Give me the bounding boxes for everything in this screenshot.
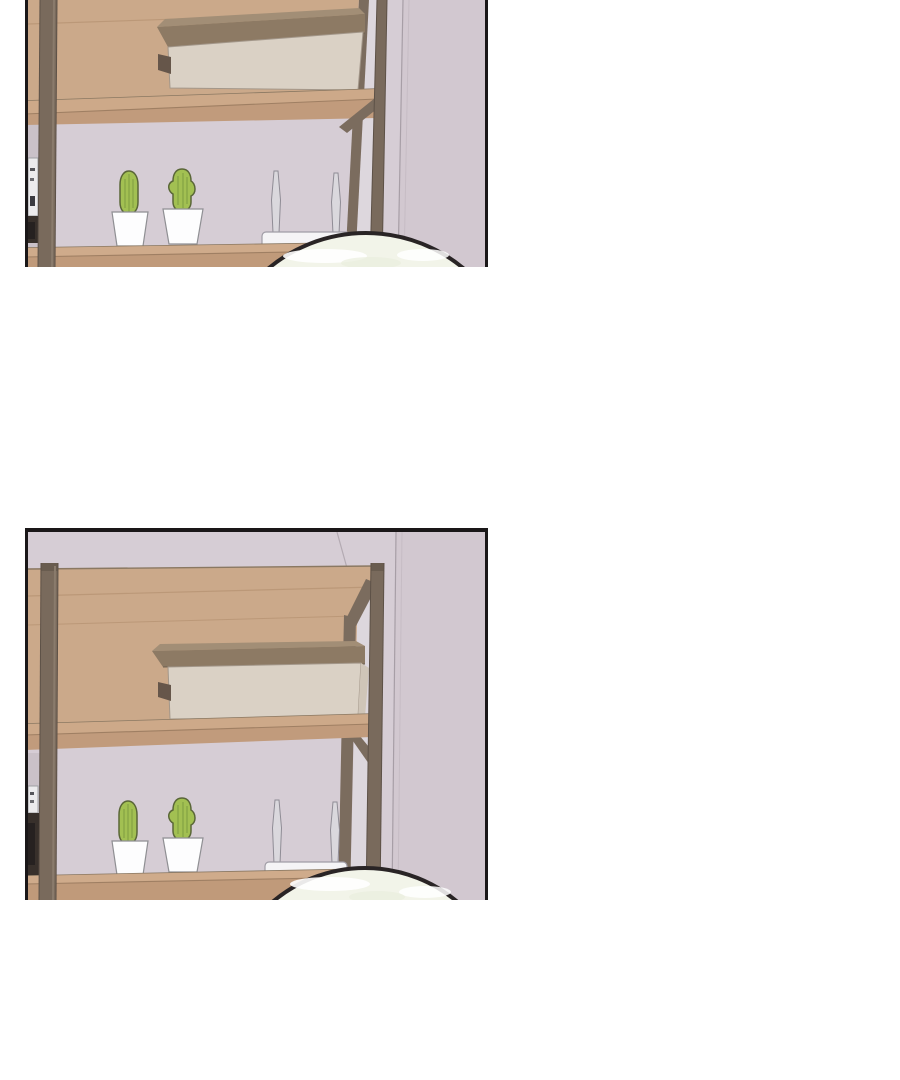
comic-panel-bottom (25, 528, 488, 900)
book-mark-3 (30, 196, 35, 206)
bubble-shine-1 (290, 877, 370, 891)
panel-border-right (485, 528, 488, 900)
comic-panel-top-canvas (25, 0, 488, 267)
wall-right-section (398, 0, 488, 267)
white-book-spine (28, 158, 38, 216)
panel-border-top (25, 528, 488, 532)
plant-pot-1 (112, 841, 148, 875)
comic-panel-top (25, 0, 488, 267)
book-mark-2 (30, 800, 34, 803)
dark-book-2 (28, 823, 35, 865)
plant-pot-1 (112, 212, 148, 246)
comic-panel-bottom-canvas (25, 528, 488, 900)
panel-border-right (485, 0, 488, 267)
book-mark-2 (30, 178, 34, 181)
router-antenna-left (273, 800, 282, 864)
router-antenna-right (332, 173, 341, 234)
white-book-spine (28, 786, 38, 813)
plant-pot-2 (163, 838, 203, 872)
book-mark-1 (30, 168, 35, 171)
panel-border-left (25, 0, 28, 267)
right-post-cap (371, 563, 384, 571)
book-mark-1 (30, 792, 34, 795)
router-antenna-left (272, 171, 281, 233)
bubble-shine-2 (397, 249, 449, 261)
webtoon-page (0, 0, 900, 1080)
storage-box-body (168, 663, 361, 719)
bubble-shine-2 (399, 886, 451, 898)
router-antenna-right (331, 802, 340, 863)
wall-right-section (392, 532, 488, 900)
dark-book-2 (28, 222, 35, 239)
plant-pot-2 (163, 209, 203, 244)
panel-border-left (25, 528, 28, 900)
